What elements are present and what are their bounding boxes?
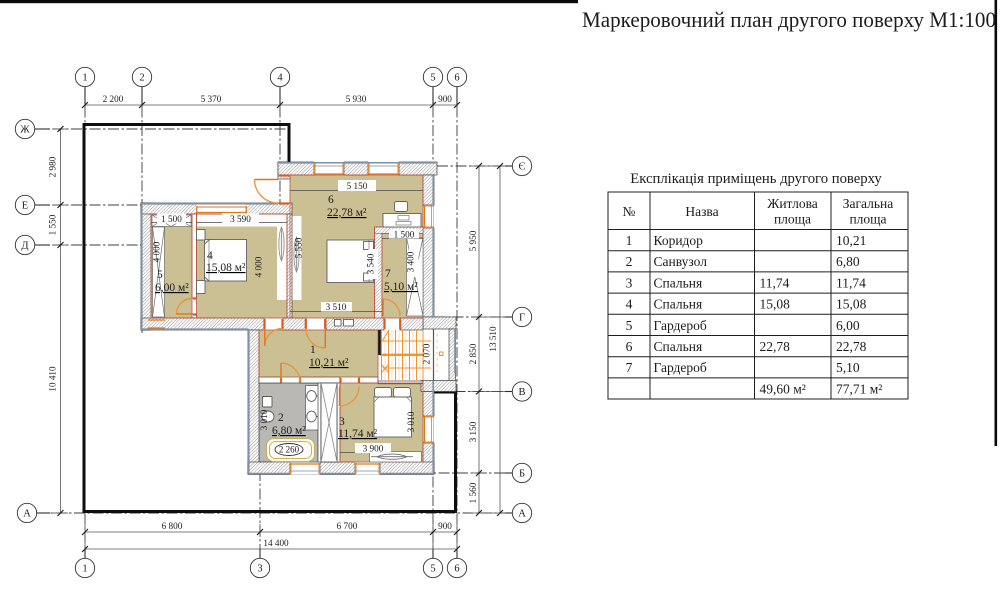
svg-text:5: 5 [626,318,633,333]
svg-text:5 370: 5 370 [201,94,222,104]
svg-text:6: 6 [454,564,459,575]
svg-text:1: 1 [82,73,87,84]
svg-text:Спальня: Спальня [654,339,703,354]
svg-text:5 930: 5 930 [346,94,367,104]
svg-text:5 950: 5 950 [468,230,478,251]
svg-text:10 410: 10 410 [48,366,58,392]
svg-text:1 500: 1 500 [394,230,415,240]
svg-text:6: 6 [328,194,334,206]
svg-text:7: 7 [626,360,633,375]
svg-text:Гардероб: Гардероб [654,318,707,333]
svg-text:5: 5 [157,269,163,281]
svg-text:11,74: 11,74 [836,275,866,290]
svg-text:2 850: 2 850 [468,343,478,364]
svg-text:5,10 м²: 5,10 м² [384,281,418,293]
svg-text:3 540: 3 540 [366,253,376,274]
svg-text:5: 5 [430,73,435,84]
svg-text:22,78: 22,78 [836,339,867,354]
svg-text:10,21 м²: 10,21 м² [309,357,349,369]
svg-text:900: 900 [438,521,452,531]
svg-text:Є: Є [519,162,526,173]
svg-text:11,74 м²: 11,74 м² [338,428,378,440]
svg-text:6: 6 [626,339,633,354]
svg-text:4: 4 [277,73,283,84]
svg-text:площа: площа [774,212,811,227]
svg-text:Б: Б [519,469,525,480]
svg-text:5,10: 5,10 [836,360,860,375]
svg-text:6 700: 6 700 [337,521,358,531]
svg-text:77,71 м²: 77,71 м² [836,381,882,396]
svg-text:5 550: 5 550 [294,237,304,258]
svg-text:А: А [23,509,31,520]
svg-text:Д: Д [21,241,28,252]
svg-text:6 800: 6 800 [162,521,183,531]
svg-text:Загальна: Загальна [843,196,894,211]
svg-text:3 150: 3 150 [468,421,478,442]
svg-text:А: А [518,509,526,520]
svg-text:22,78 м²: 22,78 м² [327,207,367,219]
svg-text:3 510: 3 510 [326,302,347,312]
svg-text:3 010: 3 010 [406,411,416,432]
svg-text:1: 1 [626,233,633,248]
svg-text:Коридор: Коридор [654,233,704,248]
svg-text:Е: Е [22,201,28,212]
svg-text:6,00: 6,00 [836,318,860,333]
svg-text:1 550: 1 550 [48,214,58,235]
svg-text:2 200: 2 200 [103,94,124,104]
svg-text:13 510: 13 510 [488,326,498,352]
svg-text:4 000: 4 000 [152,241,162,262]
svg-text:Спальня: Спальня [654,297,703,312]
svg-text:7: 7 [385,268,391,280]
svg-text:2 980: 2 980 [48,156,58,177]
svg-text:4: 4 [207,250,213,262]
svg-text:Гардероб: Гардероб [654,360,707,375]
svg-text:6,80: 6,80 [836,254,860,269]
svg-text:Назва: Назва [685,204,718,219]
svg-text:11,74: 11,74 [760,275,790,290]
svg-text:1 500: 1 500 [161,214,182,224]
svg-text:49,60 м²: 49,60 м² [760,381,806,396]
svg-text:В: В [518,387,525,398]
svg-text:4 000: 4 000 [254,256,264,277]
svg-text:900: 900 [438,94,452,104]
svg-text:Житлова: Житлова [767,196,818,211]
svg-text:6: 6 [454,73,459,84]
svg-text:15,08: 15,08 [760,297,791,312]
svg-text:22,78: 22,78 [760,339,791,354]
svg-text:2 260: 2 260 [279,445,300,455]
svg-text:2 070: 2 070 [422,343,432,364]
svg-text:Санвузол: Санвузол [654,254,708,269]
svg-text:2: 2 [139,73,144,84]
svg-text:Г: Г [519,313,525,324]
svg-text:Спальня: Спальня [654,275,703,290]
svg-text:3 400: 3 400 [406,251,416,272]
svg-text:6,00 м²: 6,00 м² [155,282,189,294]
svg-text:Експлікація приміщень другого: Експлікація приміщень другого поверху [630,171,882,187]
svg-text:5: 5 [430,564,435,575]
svg-text:3: 3 [339,416,345,428]
svg-text:1 560: 1 560 [468,482,478,503]
svg-text:2: 2 [278,412,284,424]
svg-text:3 010: 3 010 [259,409,269,430]
svg-text:3 900: 3 900 [363,444,384,454]
svg-text:15,08: 15,08 [836,297,867,312]
svg-text:10,21: 10,21 [836,233,866,248]
svg-text:14 400: 14 400 [263,538,289,548]
svg-text:Маркеровочний план другого по: Маркеровочний план другого поверху М1:10… [582,7,996,32]
svg-text:№: № [623,204,636,219]
svg-text:6,80 м²: 6,80 м² [272,425,306,437]
svg-text:3: 3 [626,275,633,290]
svg-text:площа: площа [849,212,886,227]
svg-text:4: 4 [626,297,633,312]
svg-text:2: 2 [626,254,633,269]
svg-text:3 590: 3 590 [230,214,251,224]
svg-text:Ж: Ж [20,125,30,136]
svg-text:15,08 м²: 15,08 м² [206,262,246,274]
svg-text:1: 1 [82,564,87,575]
svg-text:3: 3 [257,564,262,575]
svg-text:1: 1 [310,344,316,356]
svg-text:5 150: 5 150 [347,181,368,191]
